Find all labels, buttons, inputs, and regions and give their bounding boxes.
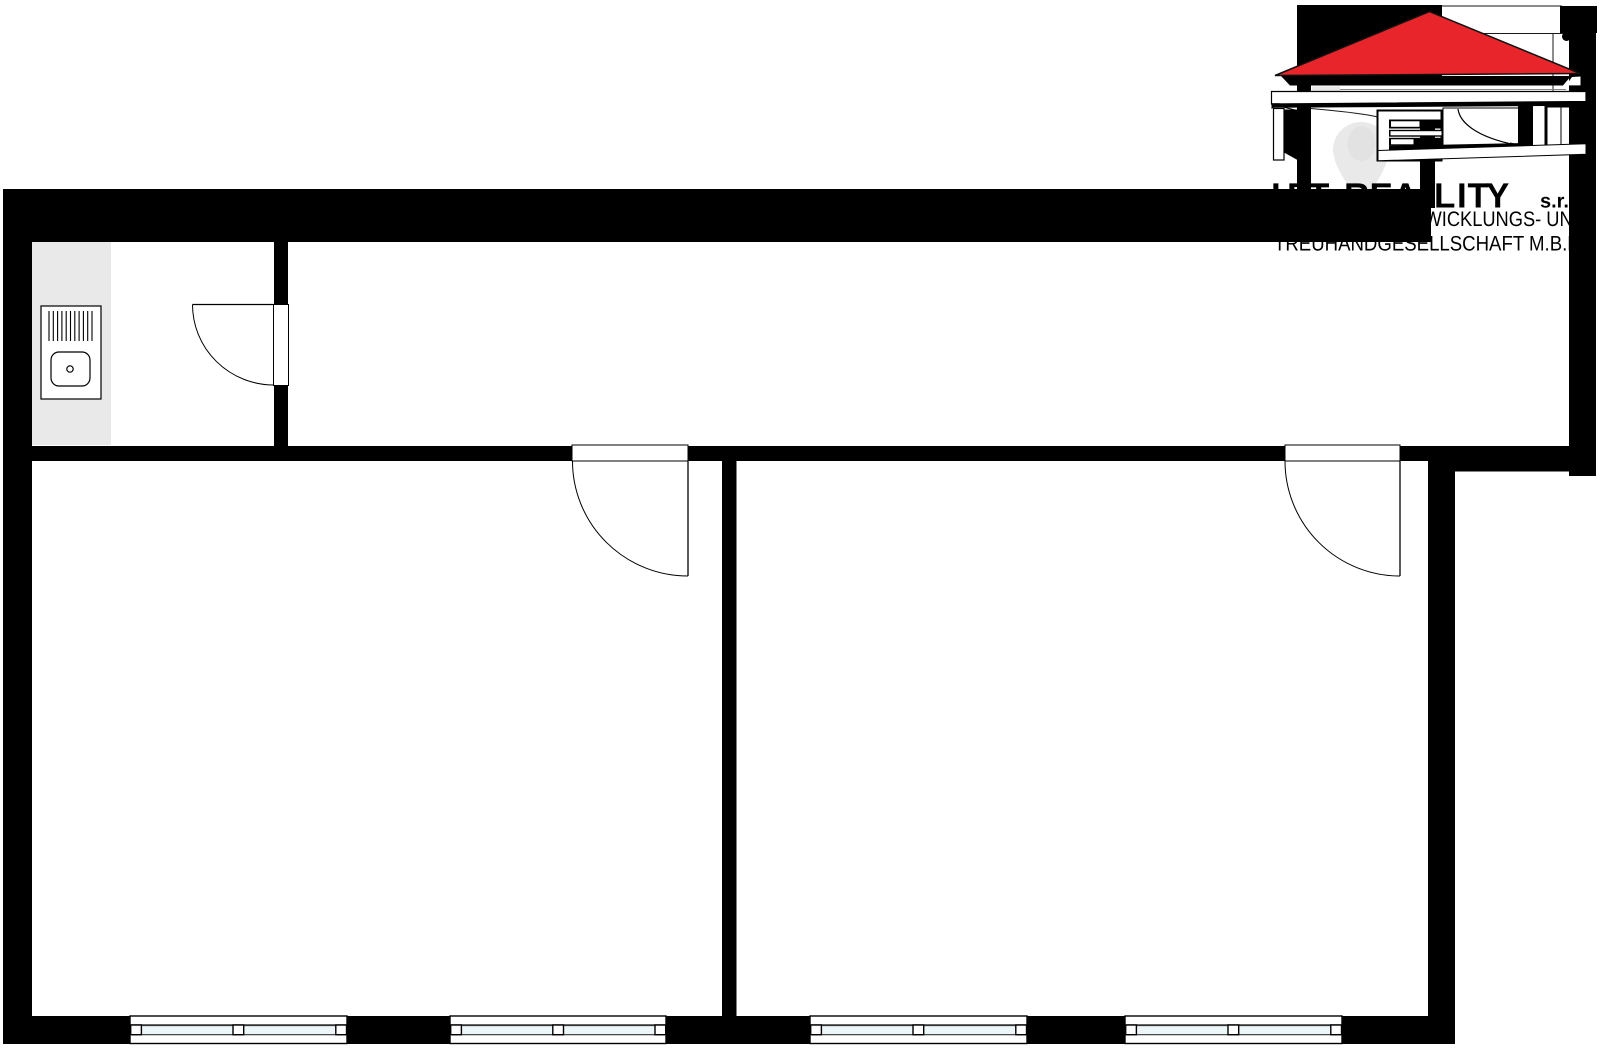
svg-text:WICKLUNGS- UND: WICKLUNGS- UND [1425,208,1586,231]
